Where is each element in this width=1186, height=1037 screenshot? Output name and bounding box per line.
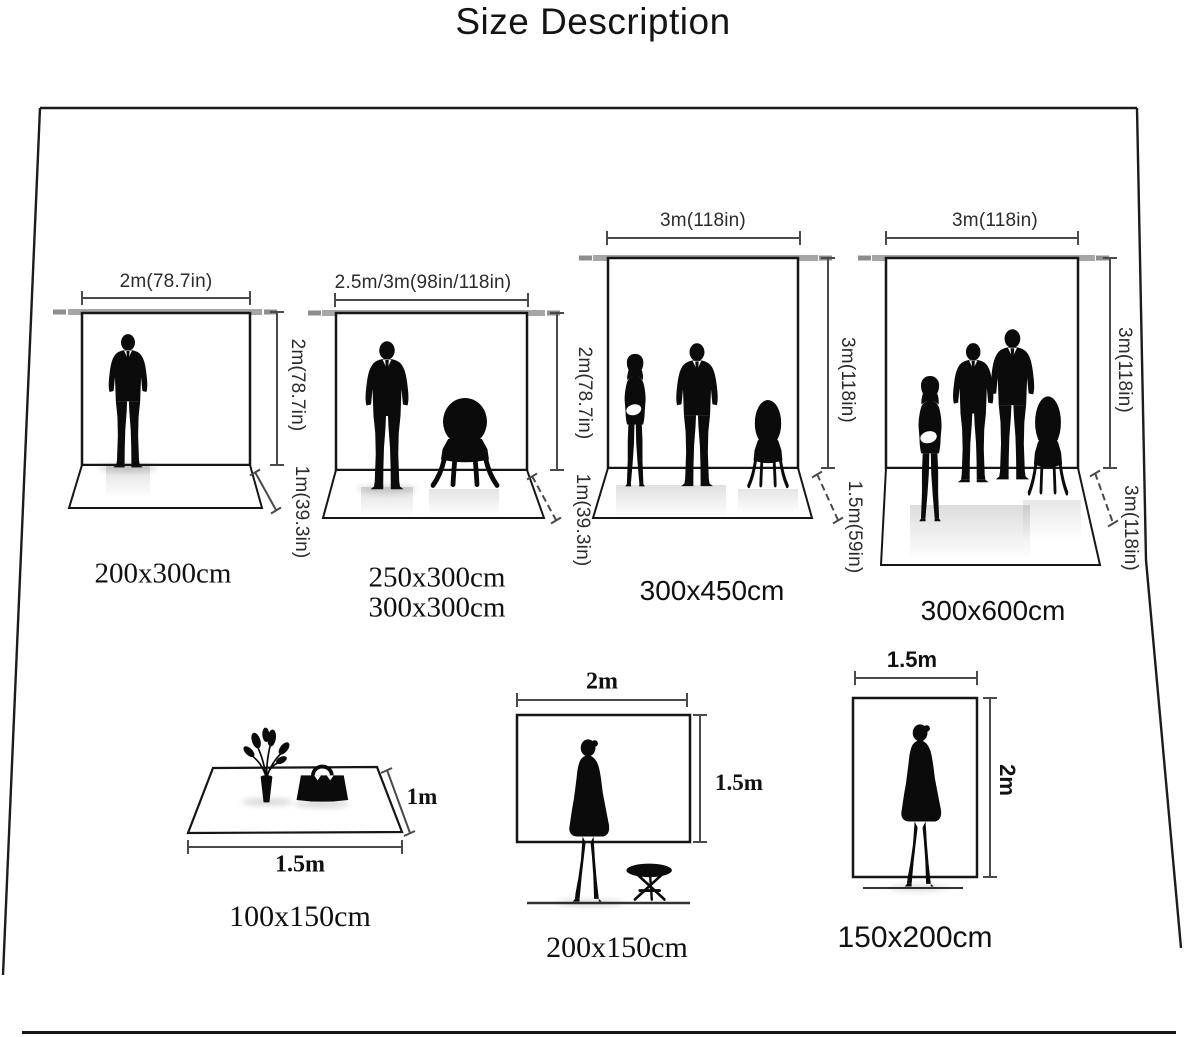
mat-outline <box>188 767 402 833</box>
backdrop-200x300-diagram: 2m(78.7in) 2m(78.7in) 1m(39.3in) 200x300… <box>40 270 320 610</box>
stand-tip-left <box>308 311 321 316</box>
backdrop-frame <box>82 313 250 465</box>
depth-dimension-line <box>1090 471 1118 527</box>
width-dimension-label: 1.5m <box>887 647 937 673</box>
width-dimension-label: 3m(118in) <box>952 210 1038 232</box>
width-dimension-label: 3m(118in) <box>660 210 746 232</box>
depth-dimension-label: 3m(118in) <box>1119 485 1141 571</box>
backdrop-frame <box>336 313 527 470</box>
width-dimension-line <box>335 293 528 307</box>
size-label-2: 300x300cm <box>369 592 506 625</box>
stand-tip-left <box>858 256 871 261</box>
backdrop-300x600-diagram: 3m(118in) 3m(118in) 3m(118in) 300x600cm <box>855 205 1186 645</box>
width-dimension-line <box>886 231 1078 245</box>
size-label: 250x300cm <box>369 562 506 595</box>
height-dimension-line <box>270 312 284 465</box>
size-description-infographic: Size Description <box>0 0 1186 1037</box>
height-dimension-label: 1.5m <box>715 770 763 796</box>
height-dimension-line <box>550 313 564 470</box>
depth-dimension-label: 1m <box>407 784 438 810</box>
folding-stool-silhouette <box>626 864 672 900</box>
backdrop-200x150-diagram: 2m 1.5m 200x150cm <box>490 650 780 985</box>
size-label: 200x150cm <box>546 931 688 965</box>
stand-tip-left <box>53 310 66 315</box>
backdrop-250x300-diagram: 2.5m/3m(98in/118in) 2m(78.7in) 1m(39.3in… <box>305 262 605 637</box>
backdrop-150x200-diagram: 1.5m 2m 150x200cm <box>810 630 1060 970</box>
backdrop-floor <box>69 465 262 508</box>
size-label: 300x600cm <box>921 595 1066 627</box>
floor-mat-100x150-diagram: 1m 1.5m 100x150cm <box>170 700 450 950</box>
width-dimension-line <box>855 671 977 685</box>
width-dimension-label: 2m(78.7in) <box>120 271 213 293</box>
size-label: 100x150cm <box>229 900 371 934</box>
backdrop-300x450-diagram: 3m(118in) 3m(118in) 1.5m(59in) 300x450cm <box>578 205 878 625</box>
height-dimension-label: 3m(118in) <box>1113 327 1135 413</box>
stand-tip-left <box>579 256 592 261</box>
size-label: 300x450cm <box>640 575 785 607</box>
width-dimension-line <box>607 231 800 245</box>
height-dimension-label: 2m <box>994 764 1020 796</box>
depth-dimension-line <box>812 472 843 524</box>
height-dimension-line <box>693 715 707 842</box>
size-label: 200x300cm <box>95 558 232 591</box>
size-label: 150x200cm <box>837 921 992 955</box>
width-dimension-label: 2.5m/3m(98in/118in) <box>335 272 512 294</box>
width-dimension-label: 2m <box>586 669 618 696</box>
width-dimension-label: 1.5m <box>275 852 325 879</box>
width-dimension-line <box>82 291 250 305</box>
height-dimension-line <box>821 258 835 468</box>
